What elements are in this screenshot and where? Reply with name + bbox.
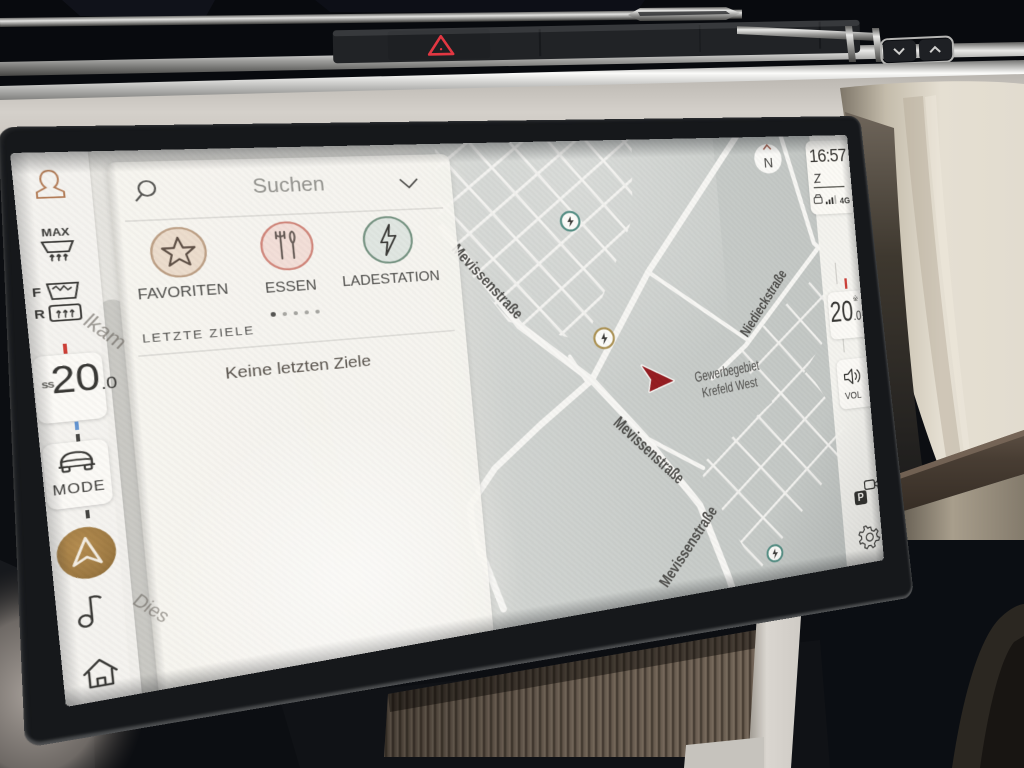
svg-text:4G: 4G	[839, 195, 850, 205]
svg-text:N: N	[763, 155, 774, 171]
